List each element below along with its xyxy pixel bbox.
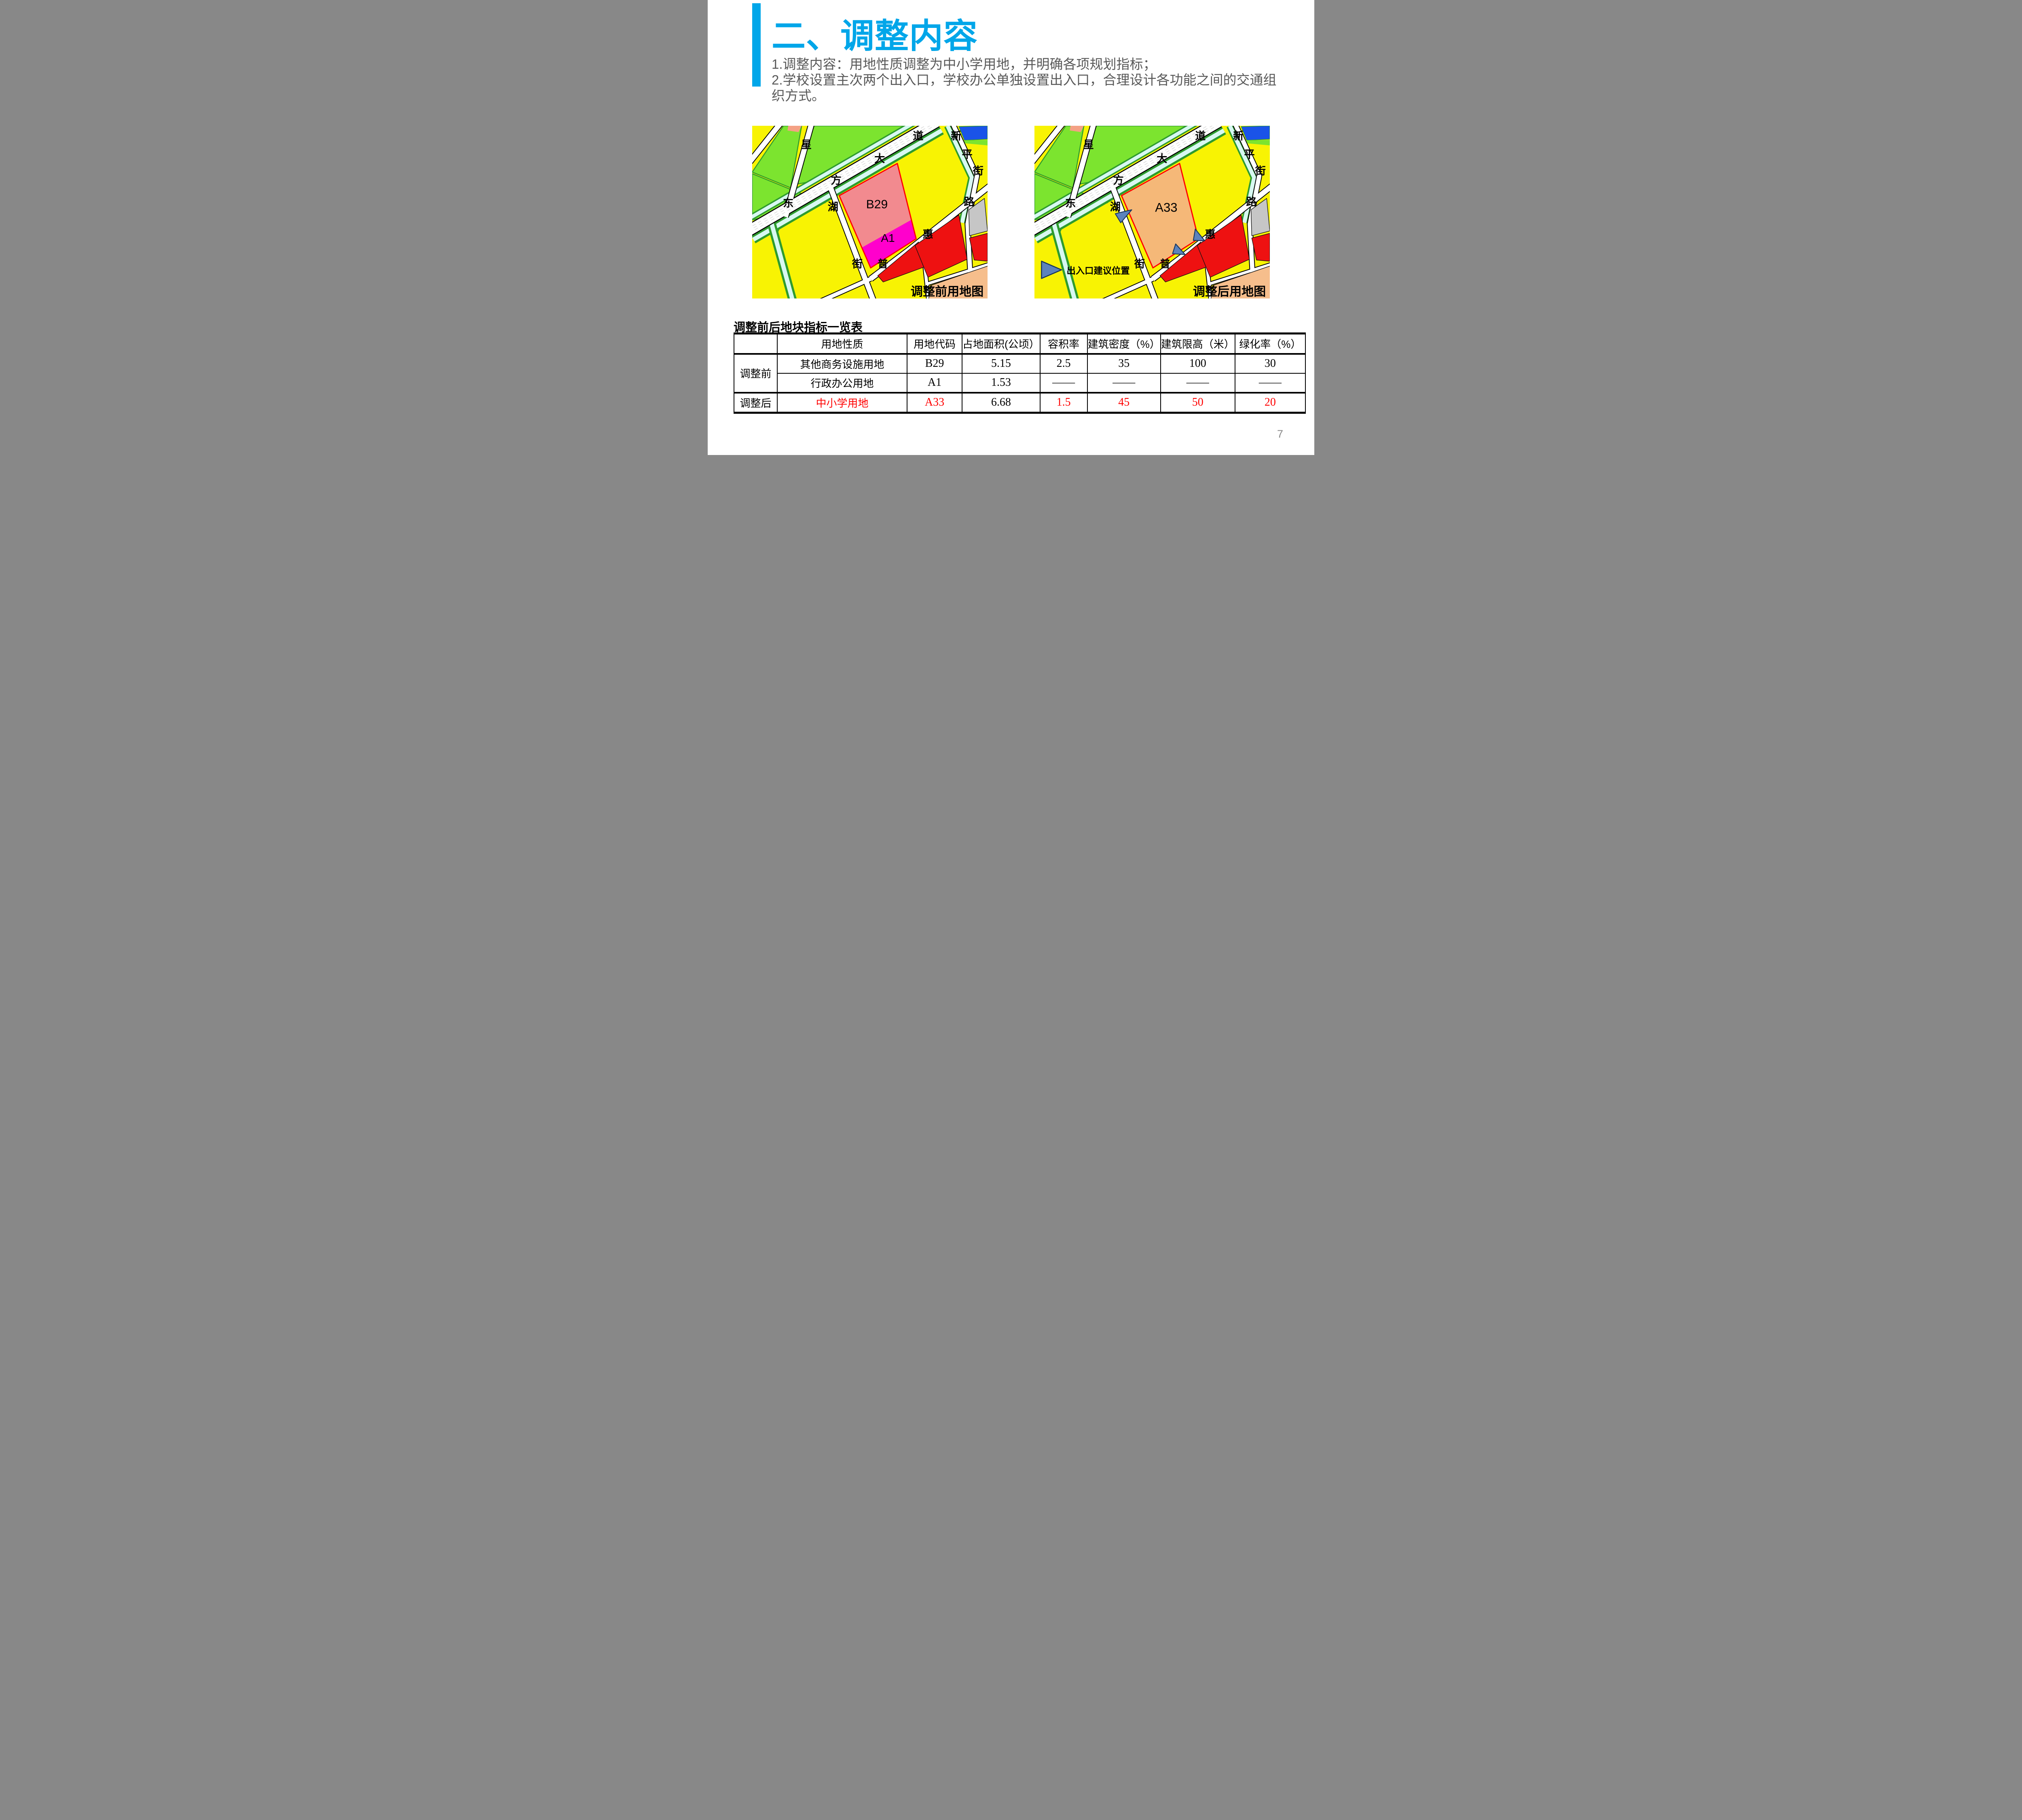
street-label: 路 xyxy=(964,196,975,208)
street-label: 湖 xyxy=(828,201,838,213)
street-label: 新 xyxy=(951,130,961,142)
parcel-label-B29: B29 xyxy=(866,198,888,211)
street-label: 路 xyxy=(1246,196,1257,208)
table-cell: 100 xyxy=(1161,354,1235,373)
street-label: 新 xyxy=(1233,130,1244,142)
street-label: 平 xyxy=(1244,148,1254,161)
map-caption: 调整前用地图 xyxy=(911,285,984,298)
street-label: 惠 xyxy=(922,229,933,241)
table-cell: 50 xyxy=(1161,393,1235,413)
street-label: 街 xyxy=(973,165,984,177)
street-label: 星 xyxy=(801,138,812,150)
legend-label: 出入口建议位置 xyxy=(1067,265,1130,276)
col-header: 用地代码 xyxy=(907,334,962,354)
table-cell: 35 xyxy=(1087,354,1161,373)
corner-cell xyxy=(734,334,777,354)
indicator-table-wrap: 用地性质用地代码占地面积(公顷）容积率建筑密度（%）建筑限高（米）绿化率（%）调… xyxy=(734,332,1306,414)
col-header: 占地面积(公顷） xyxy=(962,334,1040,354)
street-label: 街 xyxy=(1255,165,1266,177)
street-label: 平 xyxy=(962,148,972,161)
col-header: 容积率 xyxy=(1040,334,1087,354)
table-cell: —— xyxy=(1161,373,1235,393)
street-label: 湖 xyxy=(1110,201,1121,213)
street-label: 街 xyxy=(852,258,863,270)
street-label: 道 xyxy=(1195,130,1206,142)
indicator-table: 用地性质用地代码占地面积(公顷）容积率建筑密度（%）建筑限高（米）绿化率（%）调… xyxy=(734,332,1306,414)
intro-line-1: 1.调整内容：用地性质调整为中小学用地，并明确各项规划指标； xyxy=(772,57,1279,72)
street-label: 街 xyxy=(1134,258,1145,270)
row-group-after: 调整后 xyxy=(734,393,777,413)
landuse-map-after: A33出入口建议位置星道大方东湖街普惠路新平街调整后用地图 xyxy=(1034,126,1270,298)
street-label: 普 xyxy=(1160,258,1170,270)
street-label: 惠 xyxy=(1205,229,1215,241)
street-label: 方 xyxy=(831,174,841,186)
landuse-map-svg-before: B29A1星道大方东湖街普惠路新平街调整前用地图 xyxy=(752,126,988,298)
table-cell: B29 xyxy=(907,354,962,373)
table-cell: 行政办公用地 xyxy=(777,373,907,393)
parcel-label-A33: A33 xyxy=(1155,201,1177,215)
accent-bar xyxy=(752,3,761,87)
street-label: 大 xyxy=(1157,152,1167,165)
row-group-before: 调整前 xyxy=(734,354,777,393)
table-cell: 1.53 xyxy=(962,373,1040,393)
street-label: 普 xyxy=(878,258,888,270)
table-cell: 1.5 xyxy=(1040,393,1087,413)
page-title: 二、调整内容 xyxy=(772,9,978,58)
slide-root: 二、调整内容 1.调整内容：用地性质调整为中小学用地，并明确各项规划指标； 2.… xyxy=(708,0,1314,455)
landuse-map-before: B29A1星道大方东湖街普惠路新平街调整前用地图 xyxy=(752,126,988,298)
col-header: 用地性质 xyxy=(777,334,907,354)
street-label: 东 xyxy=(1065,197,1076,209)
table-cell: 中小学用地 xyxy=(777,393,907,413)
table-cell: 6.68 xyxy=(962,393,1040,413)
table-cell: —— xyxy=(1087,373,1161,393)
table-cell: 20 xyxy=(1235,393,1305,413)
table-cell: 2.5 xyxy=(1040,354,1087,373)
table-cell: 5.15 xyxy=(962,354,1040,373)
page-number: 7 xyxy=(1277,428,1283,440)
col-header: 绿化率（%） xyxy=(1235,334,1305,354)
table-cell: —— xyxy=(1040,373,1087,393)
street-label: 大 xyxy=(874,152,885,165)
col-header: 建筑密度（%） xyxy=(1087,334,1161,354)
table-cell: —— xyxy=(1235,373,1305,393)
intro-line-2: 2.学校设置主次两个出入口，学校办公单独设置出入口，合理设计各功能之间的交通组织… xyxy=(772,72,1279,104)
map-caption: 调整后用地图 xyxy=(1193,285,1266,298)
parcel-label-A1: A1 xyxy=(881,232,895,244)
table-cell: 45 xyxy=(1087,393,1161,413)
street-label: 东 xyxy=(783,197,793,209)
table-cell: A1 xyxy=(907,373,962,393)
street-label: 方 xyxy=(1113,174,1123,186)
landuse-map-svg-after: A33出入口建议位置星道大方东湖街普惠路新平街调整后用地图 xyxy=(1034,126,1270,298)
intro-text: 1.调整内容：用地性质调整为中小学用地，并明确各项规划指标； 2.学校设置主次两… xyxy=(772,57,1279,104)
col-header: 建筑限高（米） xyxy=(1161,334,1235,354)
street-label: 星 xyxy=(1083,138,1094,150)
table-cell: A33 xyxy=(907,393,962,413)
table-cell: 30 xyxy=(1235,354,1305,373)
table-cell: 其他商务设施用地 xyxy=(777,354,907,373)
street-label: 道 xyxy=(913,130,923,142)
